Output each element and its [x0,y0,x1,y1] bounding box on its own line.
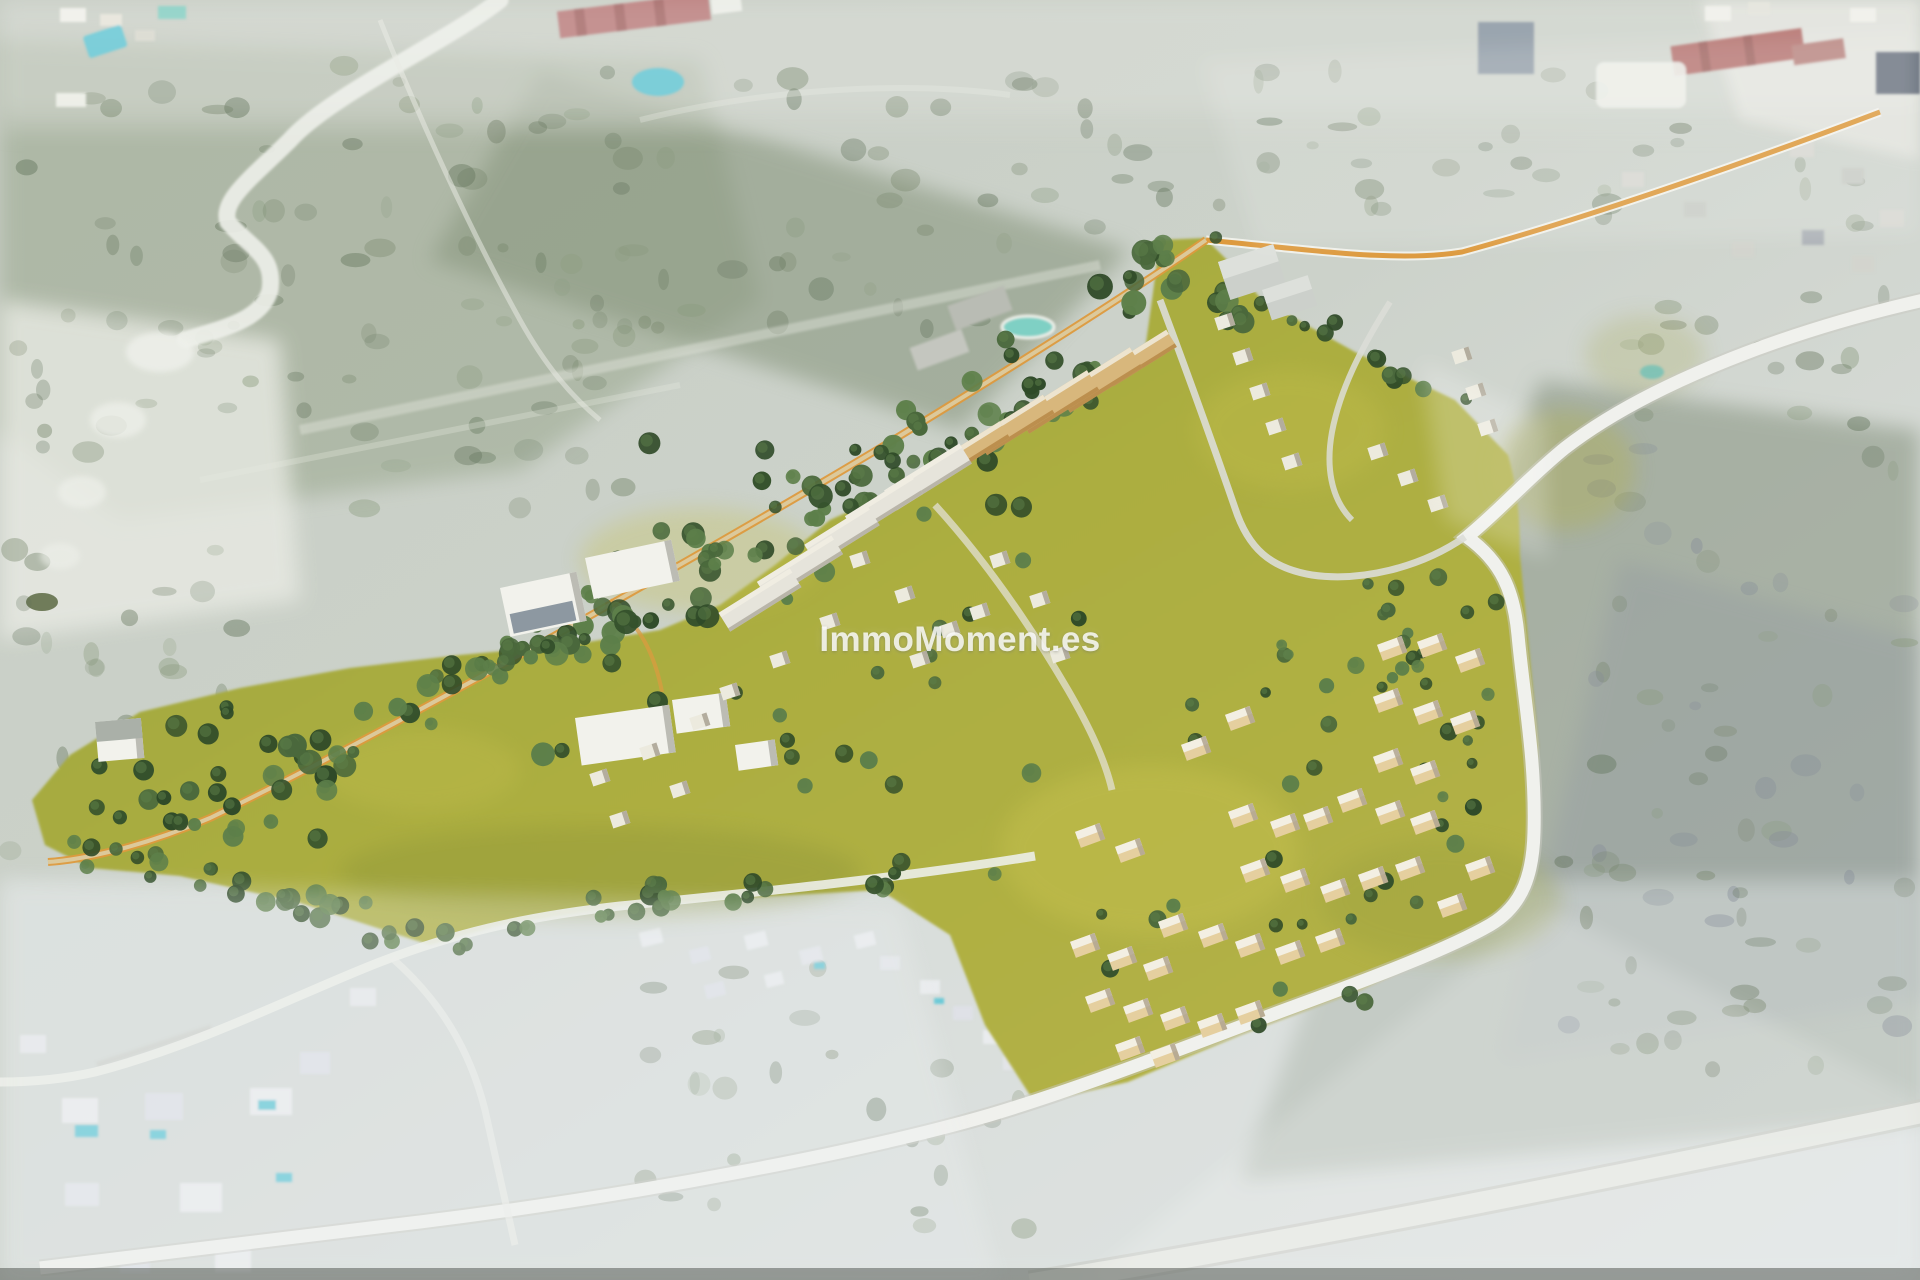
aerial-masterplan-image: ImmoMoment.es [0,0,1920,1280]
watermark: ImmoMoment.es [819,620,1100,660]
